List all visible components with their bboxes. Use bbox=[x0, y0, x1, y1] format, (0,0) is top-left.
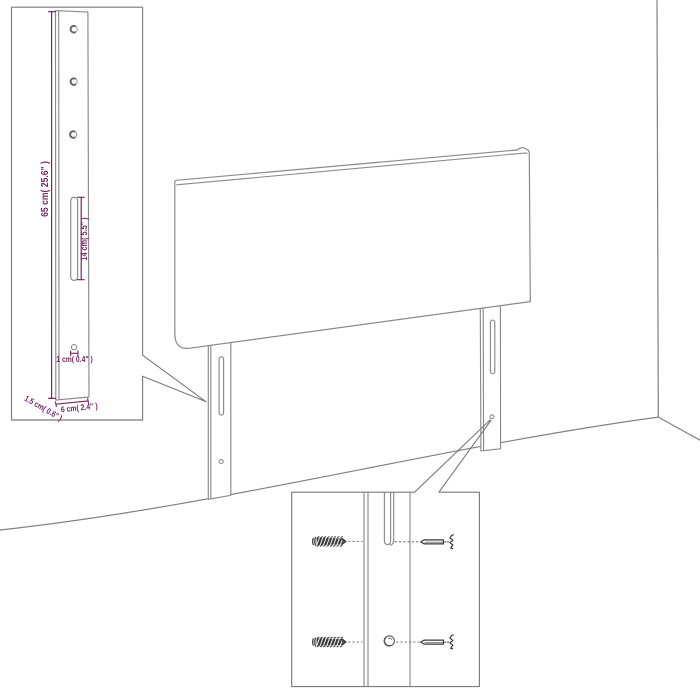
svg-text:65 cm( 25.6" ): 65 cm( 25.6" ) bbox=[39, 161, 51, 217]
svg-text:14 cm( 5.5" ): 14 cm( 5.5" ) bbox=[79, 217, 89, 260]
svg-text:1 cm( 0.4" ): 1 cm( 0.4" ) bbox=[56, 354, 93, 364]
